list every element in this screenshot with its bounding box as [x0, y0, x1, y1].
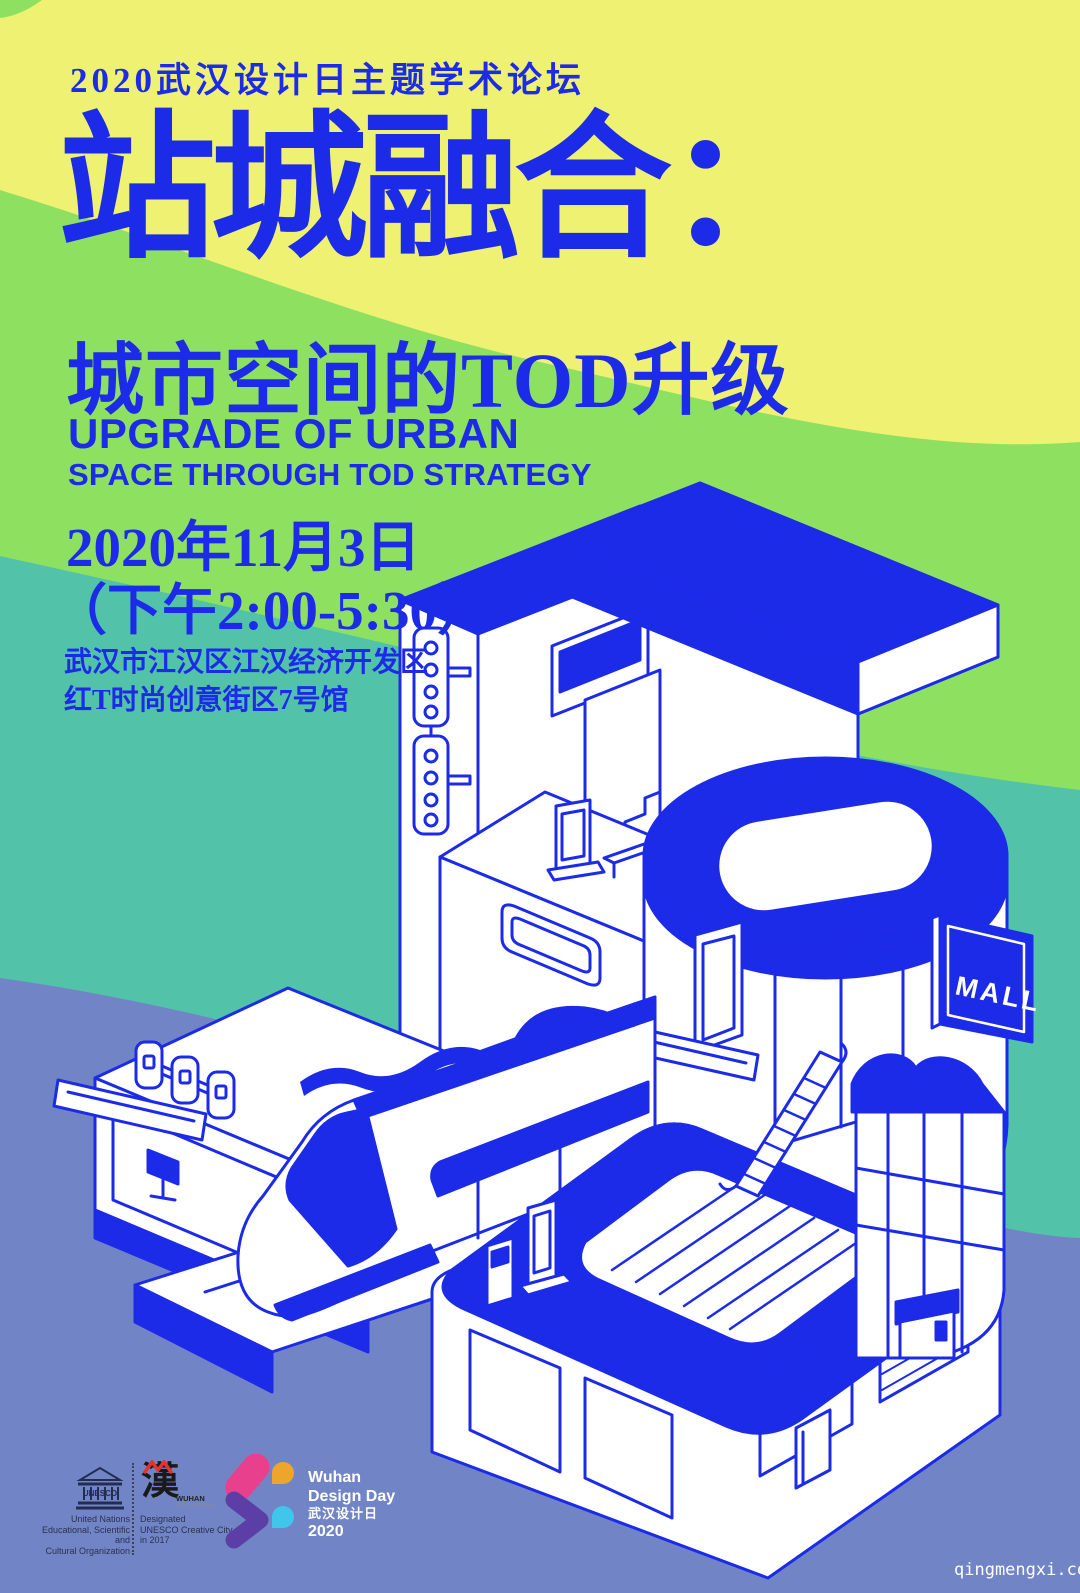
unesco-caption: United Nations Educational, Scientific a…	[30, 1514, 130, 1556]
watermark: qingmengxi.com	[954, 1560, 1080, 1580]
wuhan-logo-red-w-icon	[141, 1460, 175, 1474]
event-address-line2: 红T时尚创意街区7号馆	[64, 678, 349, 718]
wuhan-design-day-logo-text: Wuhan Design Day 武汉设计日 2020	[308, 1468, 395, 1541]
subtitle-english-line1: UPGRADE OF URBAN	[68, 410, 519, 458]
footer-divider	[132, 1463, 134, 1555]
event-time: （下午2:00-5:30）	[52, 565, 492, 645]
unesco-temple-icon	[80, 1468, 120, 1480]
unesco-logo-text: UNESCO	[83, 1489, 117, 1498]
subtitle-english-line2: SPACE THROUGH TOD STRATEGY	[68, 457, 592, 493]
unesco-logo: UNESCO	[76, 1464, 124, 1517]
wdd-purple-chevron	[234, 1500, 260, 1540]
wuhan-design-day-logo-icon	[222, 1454, 302, 1554]
wuhan-logo-subname: CITY OF DESIGN	[176, 1503, 216, 1509]
poster-title: 站城融合：	[58, 88, 818, 293]
wuhan-logo-name: WUHAN	[176, 1494, 205, 1503]
wdd-cyan-drop	[272, 1506, 294, 1528]
glass-atrium	[852, 1055, 1004, 1358]
atrium-door-window	[936, 1322, 946, 1340]
poster: MALL	[0, 0, 1080, 1593]
event-address-line1: 武汉市江汉区江汉经济开发区	[64, 640, 428, 680]
wdd-orange-drop	[272, 1462, 294, 1484]
mall-sign: MALL	[932, 915, 1044, 1042]
